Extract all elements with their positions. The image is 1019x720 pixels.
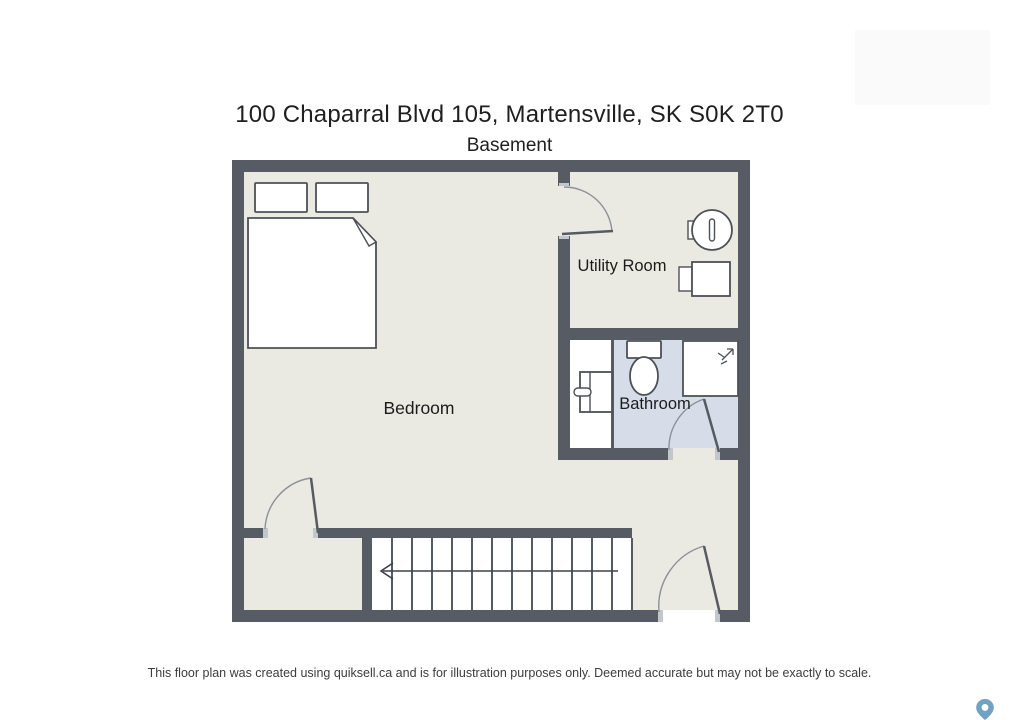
mattress-icon: [248, 218, 376, 348]
utility-room-label: Utility Room: [578, 257, 667, 275]
bathroom-bottom-wall-left: [558, 448, 668, 460]
bathroom-bottom-wall-right: [720, 448, 738, 460]
floor-plan-svg: Bedroom Utility Room Bathroom: [0, 0, 1019, 720]
wall-right: [738, 160, 750, 622]
door-jamb: [263, 528, 268, 538]
wall-top: [232, 160, 750, 172]
door-jamb: [559, 236, 569, 239]
washer-dial-icon: [710, 219, 715, 241]
toilet-bowl-icon: [630, 357, 658, 395]
wall-bottom-left: [232, 610, 658, 622]
dryer-icon: [692, 262, 730, 296]
stair-top-wall: [318, 528, 632, 538]
stairwell-left-wall: [362, 538, 372, 610]
pillow-icon: [316, 183, 368, 212]
map-pin-icon: [976, 699, 994, 720]
pillow-icon: [255, 183, 307, 212]
wall-bottom-right: [720, 610, 750, 622]
door-jamb: [559, 183, 569, 186]
wall-left: [232, 160, 244, 622]
utility-bath-divider-wall: [558, 328, 738, 340]
dryer-tab-icon: [679, 267, 692, 291]
stair-wall-left-stub: [244, 528, 263, 538]
bathroom-label: Bathroom: [619, 395, 691, 413]
utility-bath-left-wall: [558, 236, 570, 460]
footer-disclaimer: This floor plan was created using quikse…: [0, 666, 1019, 680]
floor-plan-page: 100 Chaparral Blvd 105, Martensville, SK…: [0, 0, 1019, 720]
toilet-tank-icon: [627, 341, 661, 358]
vanity-handle-icon: [574, 388, 591, 396]
bedroom-label: Bedroom: [383, 398, 454, 418]
